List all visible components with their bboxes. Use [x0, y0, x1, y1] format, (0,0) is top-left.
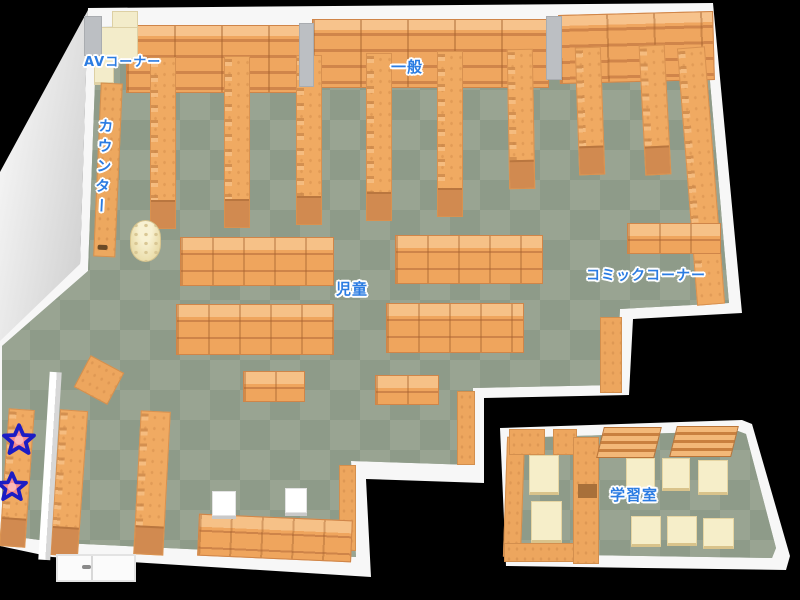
wall-bookshelf	[457, 391, 475, 465]
area-label-study-room: 学習室	[610, 487, 658, 504]
bookshelf	[224, 56, 250, 228]
study-table	[662, 458, 690, 491]
bookshelf	[243, 371, 305, 402]
study-table	[529, 455, 559, 495]
library-floor-map: AVコーナー カウンター 一般 児童 コミックコーナー 学習室	[0, 0, 800, 600]
magazine-rack	[596, 427, 662, 458]
study-table	[703, 518, 734, 549]
wall-pillar	[299, 23, 314, 87]
star-marker	[0, 471, 28, 503]
bookshelf	[575, 47, 605, 176]
wall-pillar	[84, 16, 102, 56]
area-label-comic-corner: コミックコーナー	[586, 268, 706, 284]
wall-bookshelf	[600, 317, 622, 393]
magazine-rack	[669, 426, 739, 457]
bookshelf	[180, 237, 334, 286]
area-label-general: 一般	[391, 59, 423, 76]
bookshelf	[507, 49, 535, 189]
white-table	[285, 488, 307, 513]
study-table	[667, 516, 697, 546]
divider-shelf	[573, 437, 599, 564]
bookshelf	[366, 53, 392, 221]
study-table	[631, 516, 661, 547]
white-table	[212, 491, 236, 516]
bookshelf	[375, 375, 439, 405]
study-table	[531, 501, 562, 543]
bookshelf	[197, 514, 353, 563]
bookshelf	[395, 235, 543, 284]
study-table	[698, 460, 728, 495]
wall-pillar	[546, 16, 562, 80]
star-marker	[2, 423, 36, 457]
bookshelf	[627, 223, 721, 254]
area-label-av-corner: AVコーナー	[84, 56, 161, 71]
bookshelf	[150, 57, 176, 229]
bookshelf	[509, 429, 545, 455]
round-basket	[130, 220, 161, 262]
bookshelf	[176, 304, 334, 355]
bookshelf	[437, 51, 463, 217]
divider-shelf-gap	[578, 484, 597, 498]
area-label-children: 児童	[336, 281, 368, 298]
bookshelf	[386, 303, 524, 353]
entrance-door	[56, 554, 136, 582]
